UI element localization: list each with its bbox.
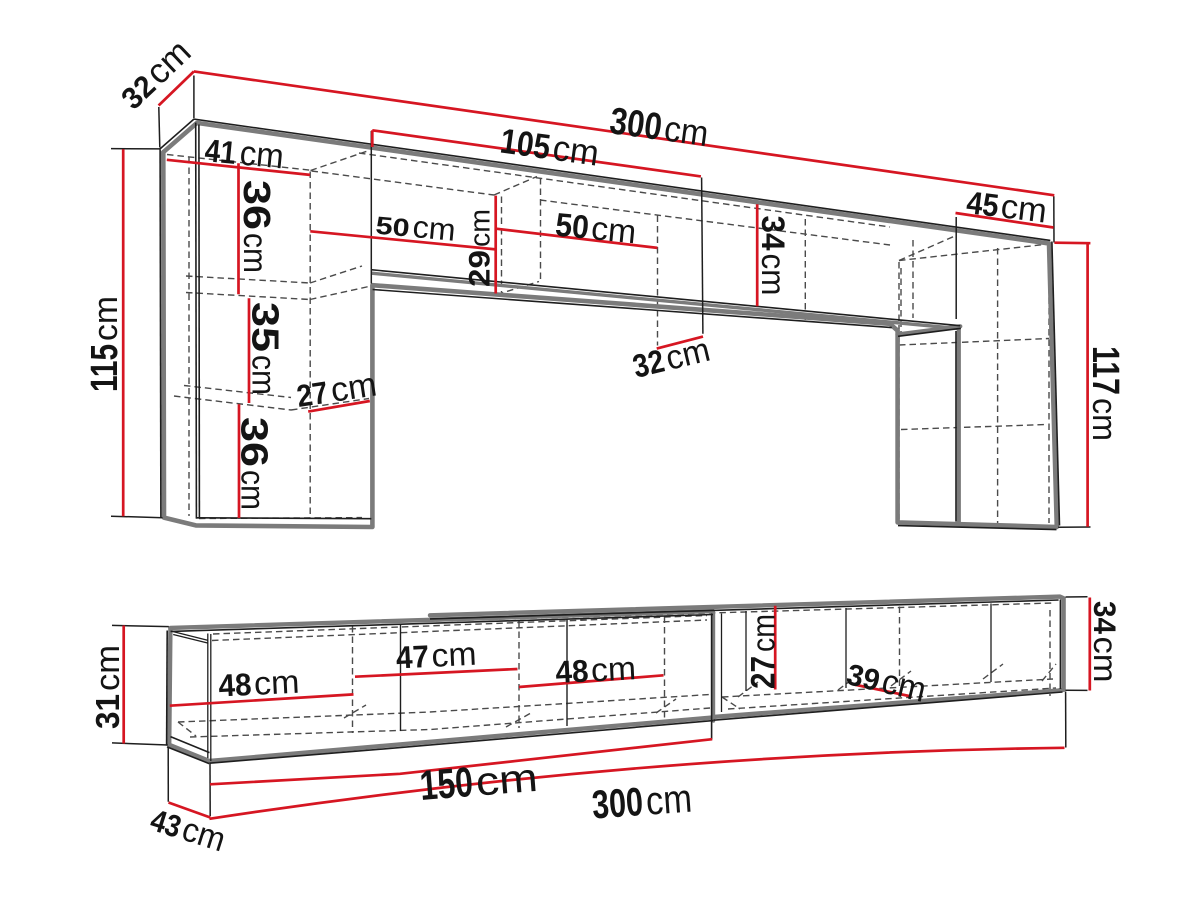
svg-text:cm: cm	[431, 635, 478, 674]
svg-text:cm: cm	[237, 233, 274, 273]
svg-text:cm: cm	[1085, 398, 1123, 441]
svg-text:cm: cm	[999, 187, 1049, 230]
svg-text:36: 36	[233, 417, 275, 467]
svg-text:31: 31	[89, 694, 126, 729]
svg-text:35: 35	[244, 302, 286, 352]
svg-text:50: 50	[374, 212, 410, 243]
svg-text:117: 117	[1084, 346, 1126, 395]
svg-text:cm: cm	[235, 470, 272, 510]
svg-text:27: 27	[745, 656, 783, 689]
svg-text:cm: cm	[87, 296, 125, 341]
svg-text:34: 34	[755, 216, 791, 251]
svg-text:34: 34	[1087, 601, 1123, 634]
svg-text:105: 105	[498, 122, 553, 167]
svg-text:cm: cm	[474, 756, 539, 805]
svg-text:45: 45	[965, 184, 1001, 224]
svg-text:cm: cm	[590, 649, 637, 688]
svg-text:cm: cm	[644, 777, 693, 824]
svg-text:27: 27	[294, 375, 330, 414]
svg-text:150: 150	[418, 758, 475, 809]
svg-text:cm: cm	[238, 133, 286, 176]
svg-text:115: 115	[84, 344, 126, 392]
svg-text:cm: cm	[746, 614, 782, 652]
svg-text:47: 47	[395, 638, 430, 676]
svg-text:29: 29	[464, 250, 497, 287]
svg-text:cm: cm	[465, 209, 497, 247]
svg-text:300: 300	[607, 100, 664, 149]
svg-text:cm: cm	[89, 645, 127, 691]
svg-text:50: 50	[554, 206, 591, 246]
svg-text:cm: cm	[411, 209, 457, 248]
svg-text:48: 48	[555, 652, 590, 690]
svg-text:48: 48	[218, 666, 253, 704]
svg-text:cm: cm	[253, 663, 300, 702]
svg-text:cm: cm	[1087, 637, 1124, 683]
svg-text:300: 300	[591, 780, 645, 827]
svg-text:cm: cm	[755, 254, 792, 296]
svg-text:41: 41	[203, 132, 237, 171]
svg-text:cm: cm	[328, 365, 379, 409]
svg-text:cm: cm	[550, 127, 601, 174]
svg-text:cm: cm	[662, 108, 711, 154]
svg-text:36: 36	[235, 180, 277, 230]
svg-text:cm: cm	[590, 209, 638, 250]
svg-text:cm: cm	[246, 355, 283, 395]
